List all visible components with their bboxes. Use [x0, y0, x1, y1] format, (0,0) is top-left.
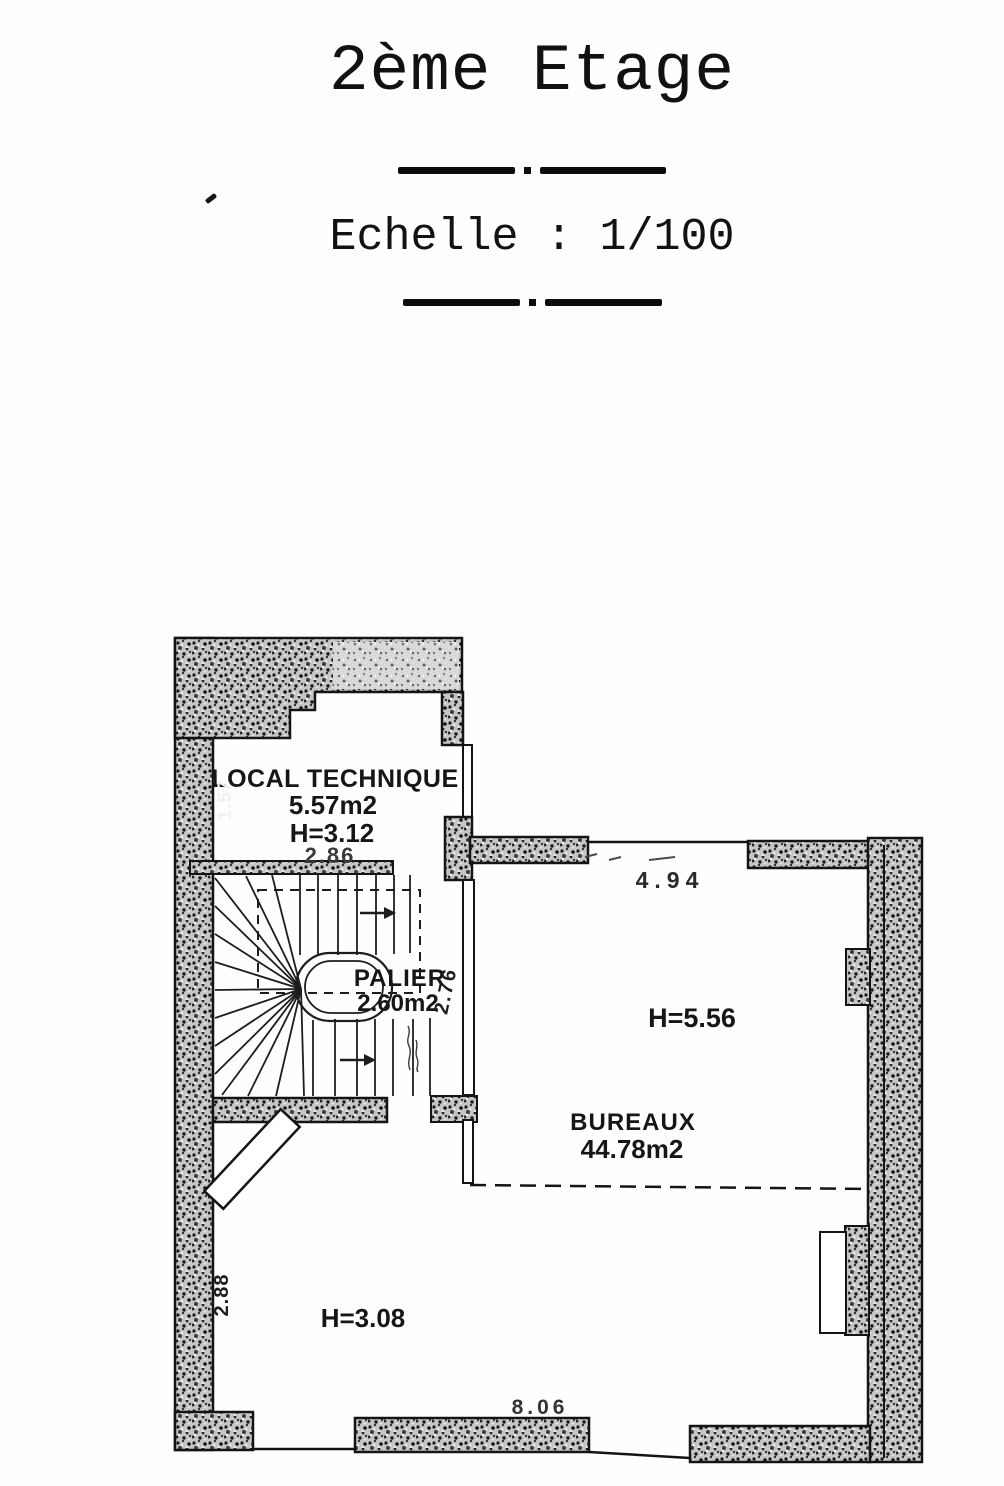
bottom-wall-left-block: [175, 1412, 253, 1450]
bottom-wall-middle: [355, 1418, 589, 1452]
bureaux-top-wall-right: [748, 841, 870, 868]
bottom-window-right-sill: [589, 1452, 690, 1458]
right-wall: [868, 838, 922, 1462]
right-wall-notch: [846, 949, 870, 1005]
right-wall-pilaster: [845, 1226, 869, 1335]
scan-smudge-ticks: [585, 854, 675, 860]
dim-top-opening: 4.94: [636, 867, 705, 893]
stair-direction-arrow-up: [360, 907, 396, 919]
floor-plan-svg: LOCAL TECHNIQUE 5.57m2 H=3.12 2.86 1.57 …: [0, 0, 1004, 1486]
window-bay-panel: [820, 1232, 846, 1333]
local-technique-width-dim: 2.86: [305, 843, 356, 868]
door-leaf: [204, 1109, 299, 1209]
local-technique-door-jamb: [463, 745, 472, 817]
left-wall: [175, 638, 213, 1450]
lower-space-height: H=3.08: [321, 1303, 406, 1333]
bureaux-top-wall-left: [470, 837, 588, 863]
top-wall-light-patch: [333, 642, 459, 689]
bureaux-left-wall-lower: [463, 1120, 473, 1183]
local-technique-area: 5.57m2: [289, 790, 377, 820]
stair-treads-lower-flight: [313, 1018, 430, 1096]
bureaux-left-wall-foot: [431, 1096, 477, 1122]
dim-bottom-wall: 8.06: [512, 1396, 569, 1419]
bureaux-name: BUREAUX: [570, 1109, 696, 1136]
stair-treads-upper-flight: [300, 875, 410, 955]
palier-area: 2.60m2: [357, 990, 438, 1017]
junction-wall-stub: [445, 817, 472, 880]
bottom-wall-right: [690, 1426, 870, 1462]
bureaux-height: H=5.56: [648, 1003, 736, 1033]
local-technique-name: LOCAL TECHNIQUE: [211, 765, 458, 793]
palier-name: PALIER: [354, 965, 446, 992]
local-technique-right-pilaster: [442, 692, 463, 745]
stair-local-technique-divider: [190, 861, 393, 874]
dim-left-upper: 1.57: [215, 780, 236, 821]
stair-direction-arrow-down: [340, 1054, 376, 1066]
stair-winder-treads: [215, 875, 304, 1096]
ceiling-height-dashed-line: [470, 1185, 868, 1189]
stair-bottom-wall: [213, 1098, 387, 1122]
dim-left-lower: 2.88: [211, 1274, 233, 1317]
bureaux-area: 44.78m2: [581, 1134, 684, 1164]
scanned-floor-plan-page: 2ème Etage Echelle : 1/100: [0, 0, 1004, 1486]
bureaux-left-wall-upper: [463, 880, 474, 1095]
